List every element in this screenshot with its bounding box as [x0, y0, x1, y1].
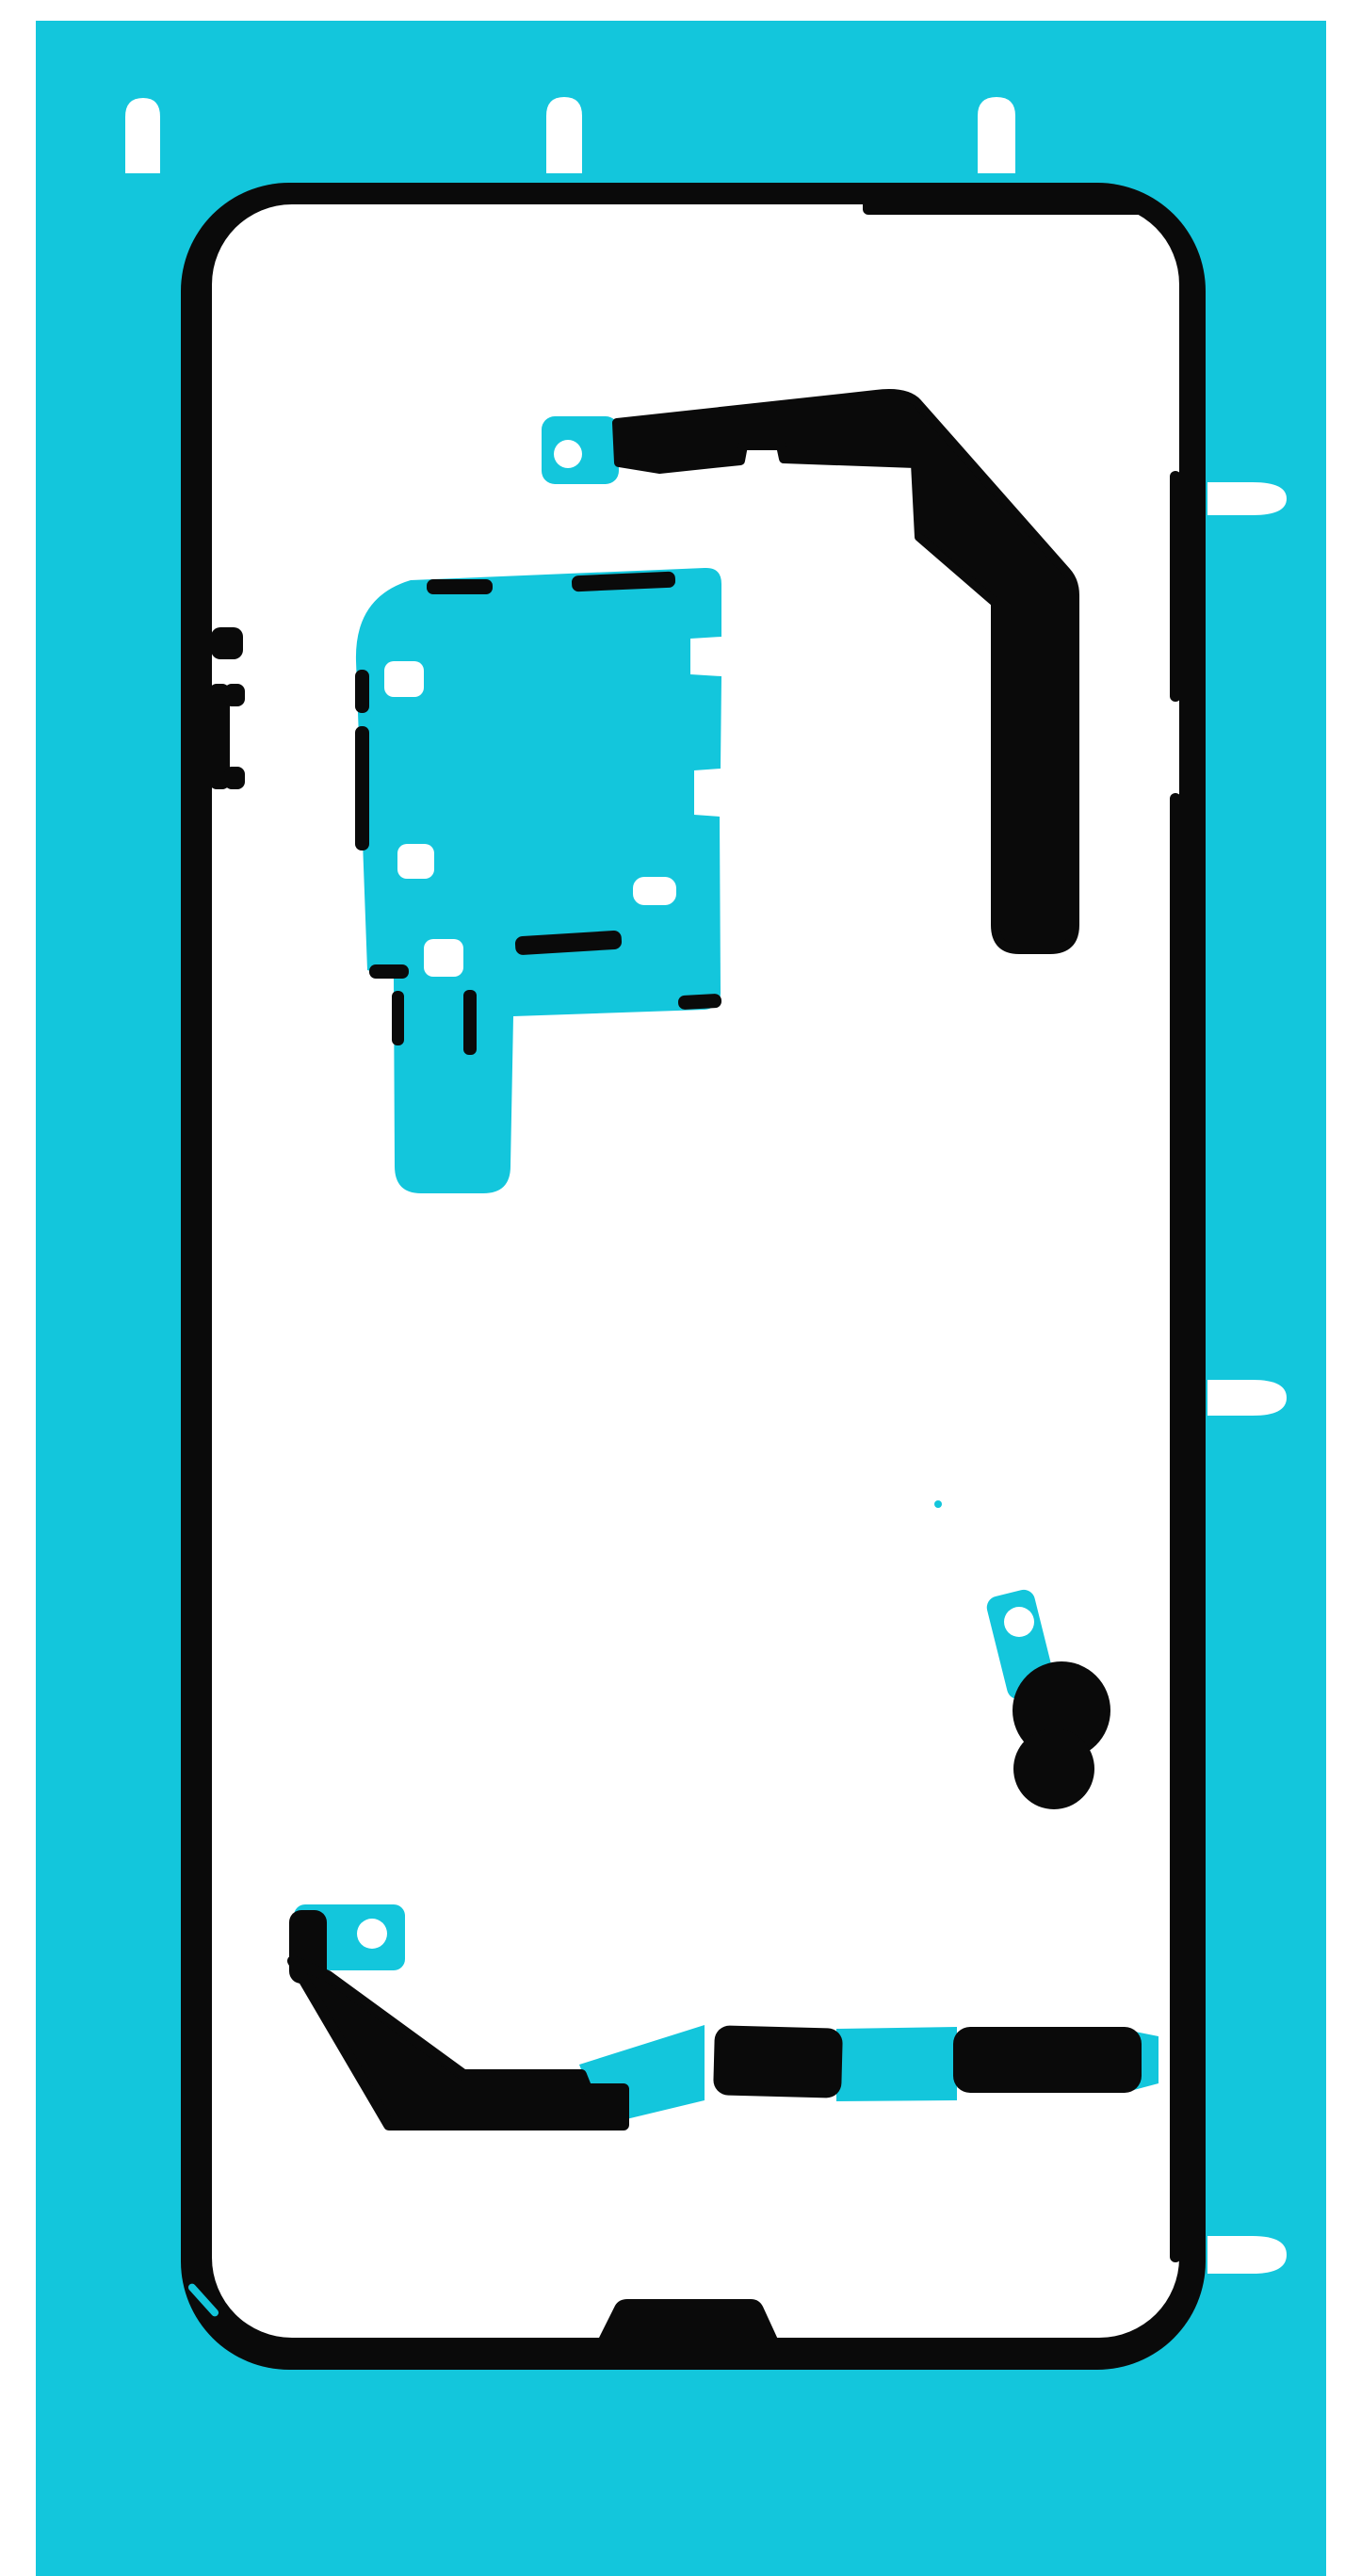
top-strip-tab-hole: [554, 440, 582, 468]
right-tab-middle-icon: [1207, 1380, 1287, 1416]
right-edge-button-mark-upper: [1170, 471, 1181, 702]
patch-dash-left-long: [355, 726, 369, 851]
left-bracket-top-hook: [224, 684, 245, 706]
bottom-strip-tab-hole: [357, 1919, 387, 1949]
patch-hole-2: [397, 844, 434, 879]
right-tab-top-icon: [1207, 482, 1287, 515]
patch-dash-shelf: [369, 964, 409, 979]
patch-hole-4: [424, 939, 463, 977]
top-tab-middle-icon: [546, 97, 582, 173]
patch-dash-bottom-right: [678, 994, 722, 1010]
scan-canvas: [0, 0, 1361, 2576]
adhesive-sheet-scan: [0, 0, 1361, 2576]
top-tab-right-icon: [978, 97, 1015, 173]
right-edge-button-mark-lower: [1170, 793, 1181, 2262]
bottom-strip-segment-1: [713, 2025, 843, 2098]
patch-hole-3: [633, 877, 676, 905]
bottom-chin-bump: [597, 2299, 779, 2341]
top-tab-left-icon: [125, 98, 160, 173]
print-speck: [934, 1500, 942, 1508]
patch-dash-tail-right: [463, 990, 477, 1055]
camera-pad-tab-hole: [1004, 1607, 1034, 1637]
left-edge-stub-mark: [211, 627, 243, 659]
patch-dash-tail-left: [392, 991, 404, 1045]
patch-hole-1: [384, 661, 424, 697]
patch-dash-left-short: [355, 670, 369, 713]
patch-dash-top-left: [427, 579, 493, 594]
bottom-strip-cyan-gap: [836, 2027, 957, 2101]
bottom-strip-segment-2: [953, 2027, 1142, 2093]
right-tab-bottom-icon: [1207, 2236, 1287, 2274]
camera-blob-lower: [1013, 1728, 1094, 1809]
top-edge-step-mark: [863, 200, 1143, 215]
left-bracket-bottom-hook: [224, 767, 245, 789]
